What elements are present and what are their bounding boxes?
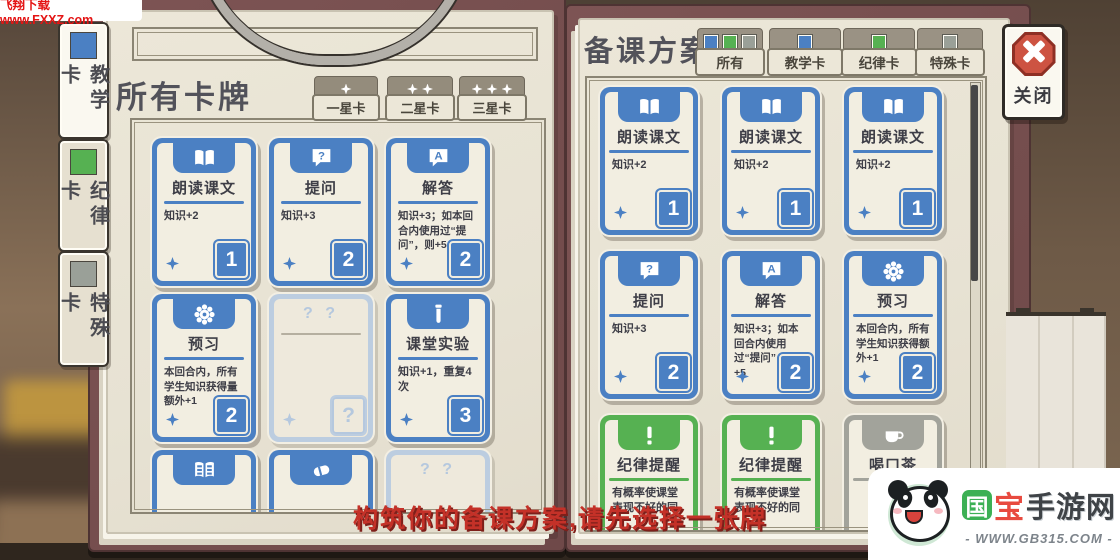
card-title: 课堂实验 [391,333,485,354]
left-panel-title: 所有卡牌 [116,72,252,117]
card-title: 纪律提醒 [727,454,815,475]
wall-paper-strip [1006,312,1106,474]
svg-text:?: ? [646,263,653,275]
right-panel-title: 备课方案 [584,28,712,70]
site-logo-box: 国 宝 手游网 - WWW.GB315.COM - [868,468,1120,560]
panda-logo-icon [882,478,954,550]
open-book-icon [637,95,662,120]
sidebar-tab-special[interactable]: 特殊卡 [58,251,109,367]
filter-label: 一星卡 [312,94,380,121]
discipline-card-color-icon [70,149,97,175]
deck-card-read-text[interactable]: 朗读课文 知识+2 1 [600,87,698,235]
deck-card-answer[interactable]: A 解答 知识+3；如本回合内使用过“提问”，则+5 2 [722,251,820,399]
gem-icon [858,370,871,383]
open-book-icon [192,146,217,171]
card-desc: 知识+2 [727,158,815,173]
close-button[interactable]: 关闭 [1002,24,1065,120]
deck-scrollbar[interactable] [970,82,981,526]
card-unknown[interactable]: ? ? ? [269,294,373,442]
watermark-fxxz: 飞翔下载 www.FXXZ.com [0,0,142,21]
svg-text:?: ? [318,150,325,162]
deck-tab-special[interactable]: 特殊卡 [917,28,983,74]
exclamation-icon [637,423,662,448]
game-screen: 教学卡 纪律卡 特殊卡 所有卡牌 一星卡 二星卡 三星卡 朗读课文 知识+2 1… [0,0,1120,560]
teacup-icon [881,423,906,448]
deck-tab-teaching[interactable]: 教学卡 [769,28,841,74]
card-title: 朗读课文 [849,126,937,147]
gem-icon [614,370,627,383]
sidebar-tab-label: 特殊卡 [55,292,113,365]
filter-label: 二星卡 [385,94,455,121]
card-title: 朗读课文 [605,126,693,147]
card-cost: 1 [657,190,690,227]
card-title: 提问 [274,177,368,198]
gem-icon [736,206,749,219]
deck-tab-label: 教学卡 [767,48,843,76]
sidebar-tab-label: 教学卡 [55,64,113,138]
card-class-experiment[interactable]: 课堂实验 知识+1，重复4次 3 [386,294,490,442]
deck-tab-label: 纪律卡 [841,48,917,76]
sidebar-tab-label: 纪律卡 [55,180,113,251]
card-title: 朗读课文 [727,126,815,147]
deck-tab-label: 特殊卡 [915,48,985,76]
answer-bubble-icon: A [759,259,784,284]
close-label: 关闭 [1014,82,1054,108]
filter-one-star-button[interactable]: 一星卡 [314,76,378,120]
special-card-color-icon [70,261,97,287]
scrollbar-handle[interactable] [971,85,978,281]
deck-card-ask-question[interactable]: ? 提问 知识+3 2 [600,251,698,399]
card-read-text[interactable]: 朗读课文 知识+2 1 [152,138,256,286]
gem-icon [858,206,871,219]
card-desc: 知识+2 [605,158,693,173]
deck-tab-discipline[interactable]: 纪律卡 [843,28,915,74]
card-cost: 2 [332,241,365,278]
deck-card-preview[interactable]: 预习 本回合内，所有学生知识获得额外+1 2 [844,251,942,399]
all-cards-grid: 朗读课文 知识+2 1 ? 提问 知识+3 2 A 解答 知识+3；如本回合内使… [130,118,546,514]
gem-icon [283,413,296,426]
gem-icon [400,413,413,426]
card-desc: 知识+1，重复4次 [391,365,485,396]
gear-flower-icon [192,302,217,327]
card-desc: 知识+3 [605,322,693,337]
card-title: 预习 [157,333,251,354]
unknown-icon: ? ? [420,461,456,479]
card-desc: 知识+2 [157,209,251,224]
open-book-icon [881,95,906,120]
card-ask-question[interactable]: ? 提问 知识+3 2 [269,138,373,286]
unknown-icon: ? ? [303,305,339,323]
deck-card-read-text[interactable]: 朗读课文 知识+2 1 [722,87,820,235]
logo-site-url: - WWW.GB315.COM - [965,531,1112,546]
card-title: 朗读课文 [157,177,251,198]
card-title: 纪律提醒 [605,454,693,475]
question-bubble-icon: ? [309,146,334,171]
hint-message: 构筑你的备课方案,请先选择一张牌 [160,499,960,535]
filter-three-star-button[interactable]: 三星卡 [459,76,525,120]
question-bubble-icon: ? [637,259,662,284]
open-book-icon [759,95,784,120]
logo-guo-badge: 国 [962,490,992,520]
deck-card-read-text[interactable]: 朗读课文 知识+2 1 [844,87,942,235]
test-tube-icon [426,302,451,327]
filter-two-star-button[interactable]: 二星卡 [387,76,453,120]
gem-icon [283,257,296,270]
card-cost: 1 [901,190,934,227]
logo-bao-char: 宝 [994,483,1024,527]
gear-flower-icon [881,259,906,284]
deck-tab-all[interactable]: 所有 [697,28,763,74]
eraser-icon [309,458,334,483]
gem-icon [166,257,179,270]
card-cost: 2 [901,354,934,391]
card-title: 预习 [849,290,937,311]
gem-icon [166,413,179,426]
workbook-icon [192,458,217,483]
card-cost: 1 [779,190,812,227]
paper-tab [1080,308,1094,316]
card-desc: 知识+2 [849,158,937,173]
gem-icon [400,257,413,270]
teaching-card-color-icon [70,32,97,59]
close-icon [1012,32,1056,76]
deck-cards-grid: 朗读课文 知识+2 1 朗读课文 知识+2 1 朗读课文 知识+2 1 ? 提问… [585,76,987,532]
card-title: 解答 [391,177,485,198]
filter-label: 三星卡 [457,94,527,121]
card-cost: 3 [449,397,482,434]
card-answer[interactable]: A 解答 知识+3；如本回合内使用过“提问”，则+5 2 [386,138,490,286]
svg-text:A: A [434,150,442,162]
card-cost: 2 [779,354,812,391]
card-preview[interactable]: 预习 本回合内，所有学生知识获得量额外+1 2 [152,294,256,442]
svg-text:A: A [767,263,775,275]
exclamation-icon [759,423,784,448]
card-desc: 知识+3 [274,209,368,224]
gem-icon [614,206,627,219]
card-cost: 2 [449,241,482,278]
card-title: 提问 [605,290,693,311]
card-cost: 1 [215,241,248,278]
paper-tab [1016,308,1030,316]
sidebar-tab-discipline[interactable]: 纪律卡 [58,139,109,252]
card-cost: 2 [215,397,248,434]
card-title: 解答 [727,290,815,311]
card-cost: ? [332,397,365,434]
card-cost: 2 [657,354,690,391]
deck-tab-label: 所有 [695,48,765,76]
sidebar-tab-teaching[interactable]: 教学卡 [58,22,109,139]
logo-site-name: 手游网 [1026,484,1116,526]
answer-bubble-icon: A [426,146,451,171]
